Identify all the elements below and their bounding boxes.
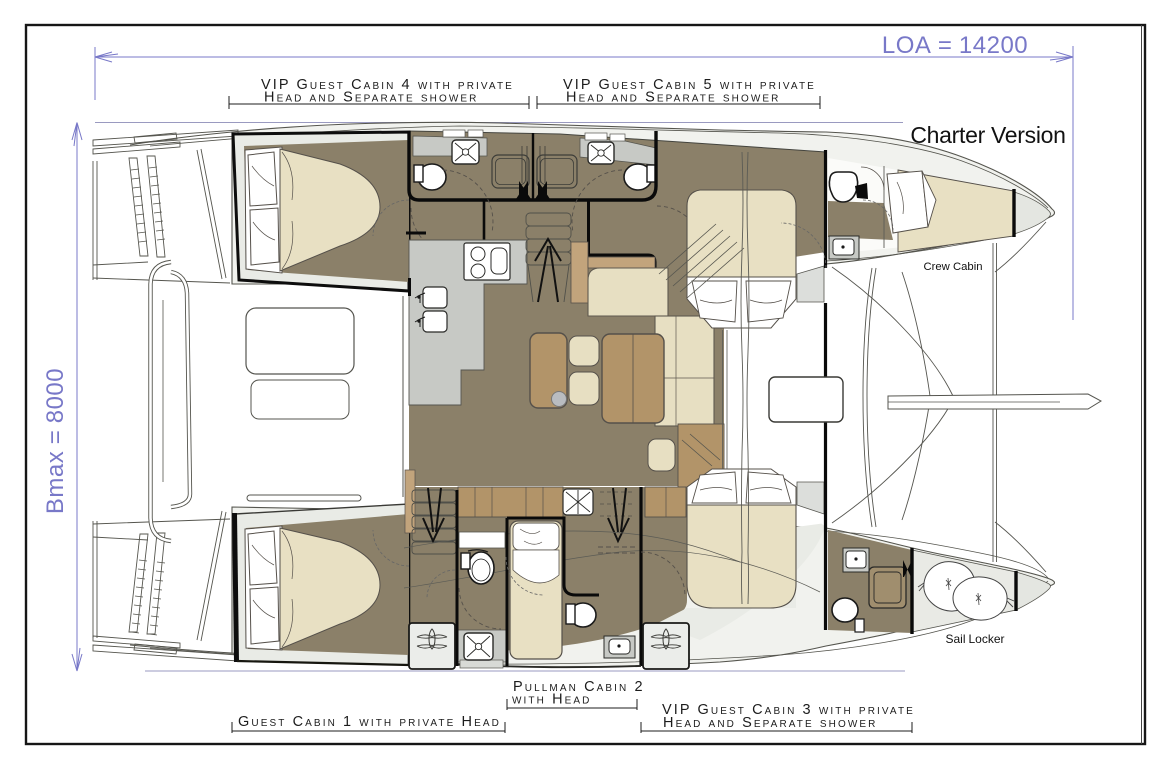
svg-text:Bmax = 8000: Bmax = 8000 bbox=[42, 368, 69, 514]
svg-text:with Head: with Head bbox=[512, 692, 592, 708]
svg-text:Charter Version: Charter Version bbox=[910, 122, 1065, 148]
svg-text:Guest Cabin 1 with private Hea: Guest Cabin 1 with private Head bbox=[238, 714, 501, 730]
svg-text:Head and Separate shower: Head and Separate shower bbox=[663, 715, 878, 731]
svg-text:Crew Cabin: Crew Cabin bbox=[923, 261, 982, 273]
svg-text:LOA = 14200: LOA = 14200 bbox=[882, 32, 1028, 59]
svg-text:Head and Separate shower: Head and Separate shower bbox=[566, 90, 781, 106]
svg-text:Head and Separate shower: Head and Separate shower bbox=[264, 90, 479, 106]
svg-text:Sail Locker: Sail Locker bbox=[945, 632, 1004, 646]
